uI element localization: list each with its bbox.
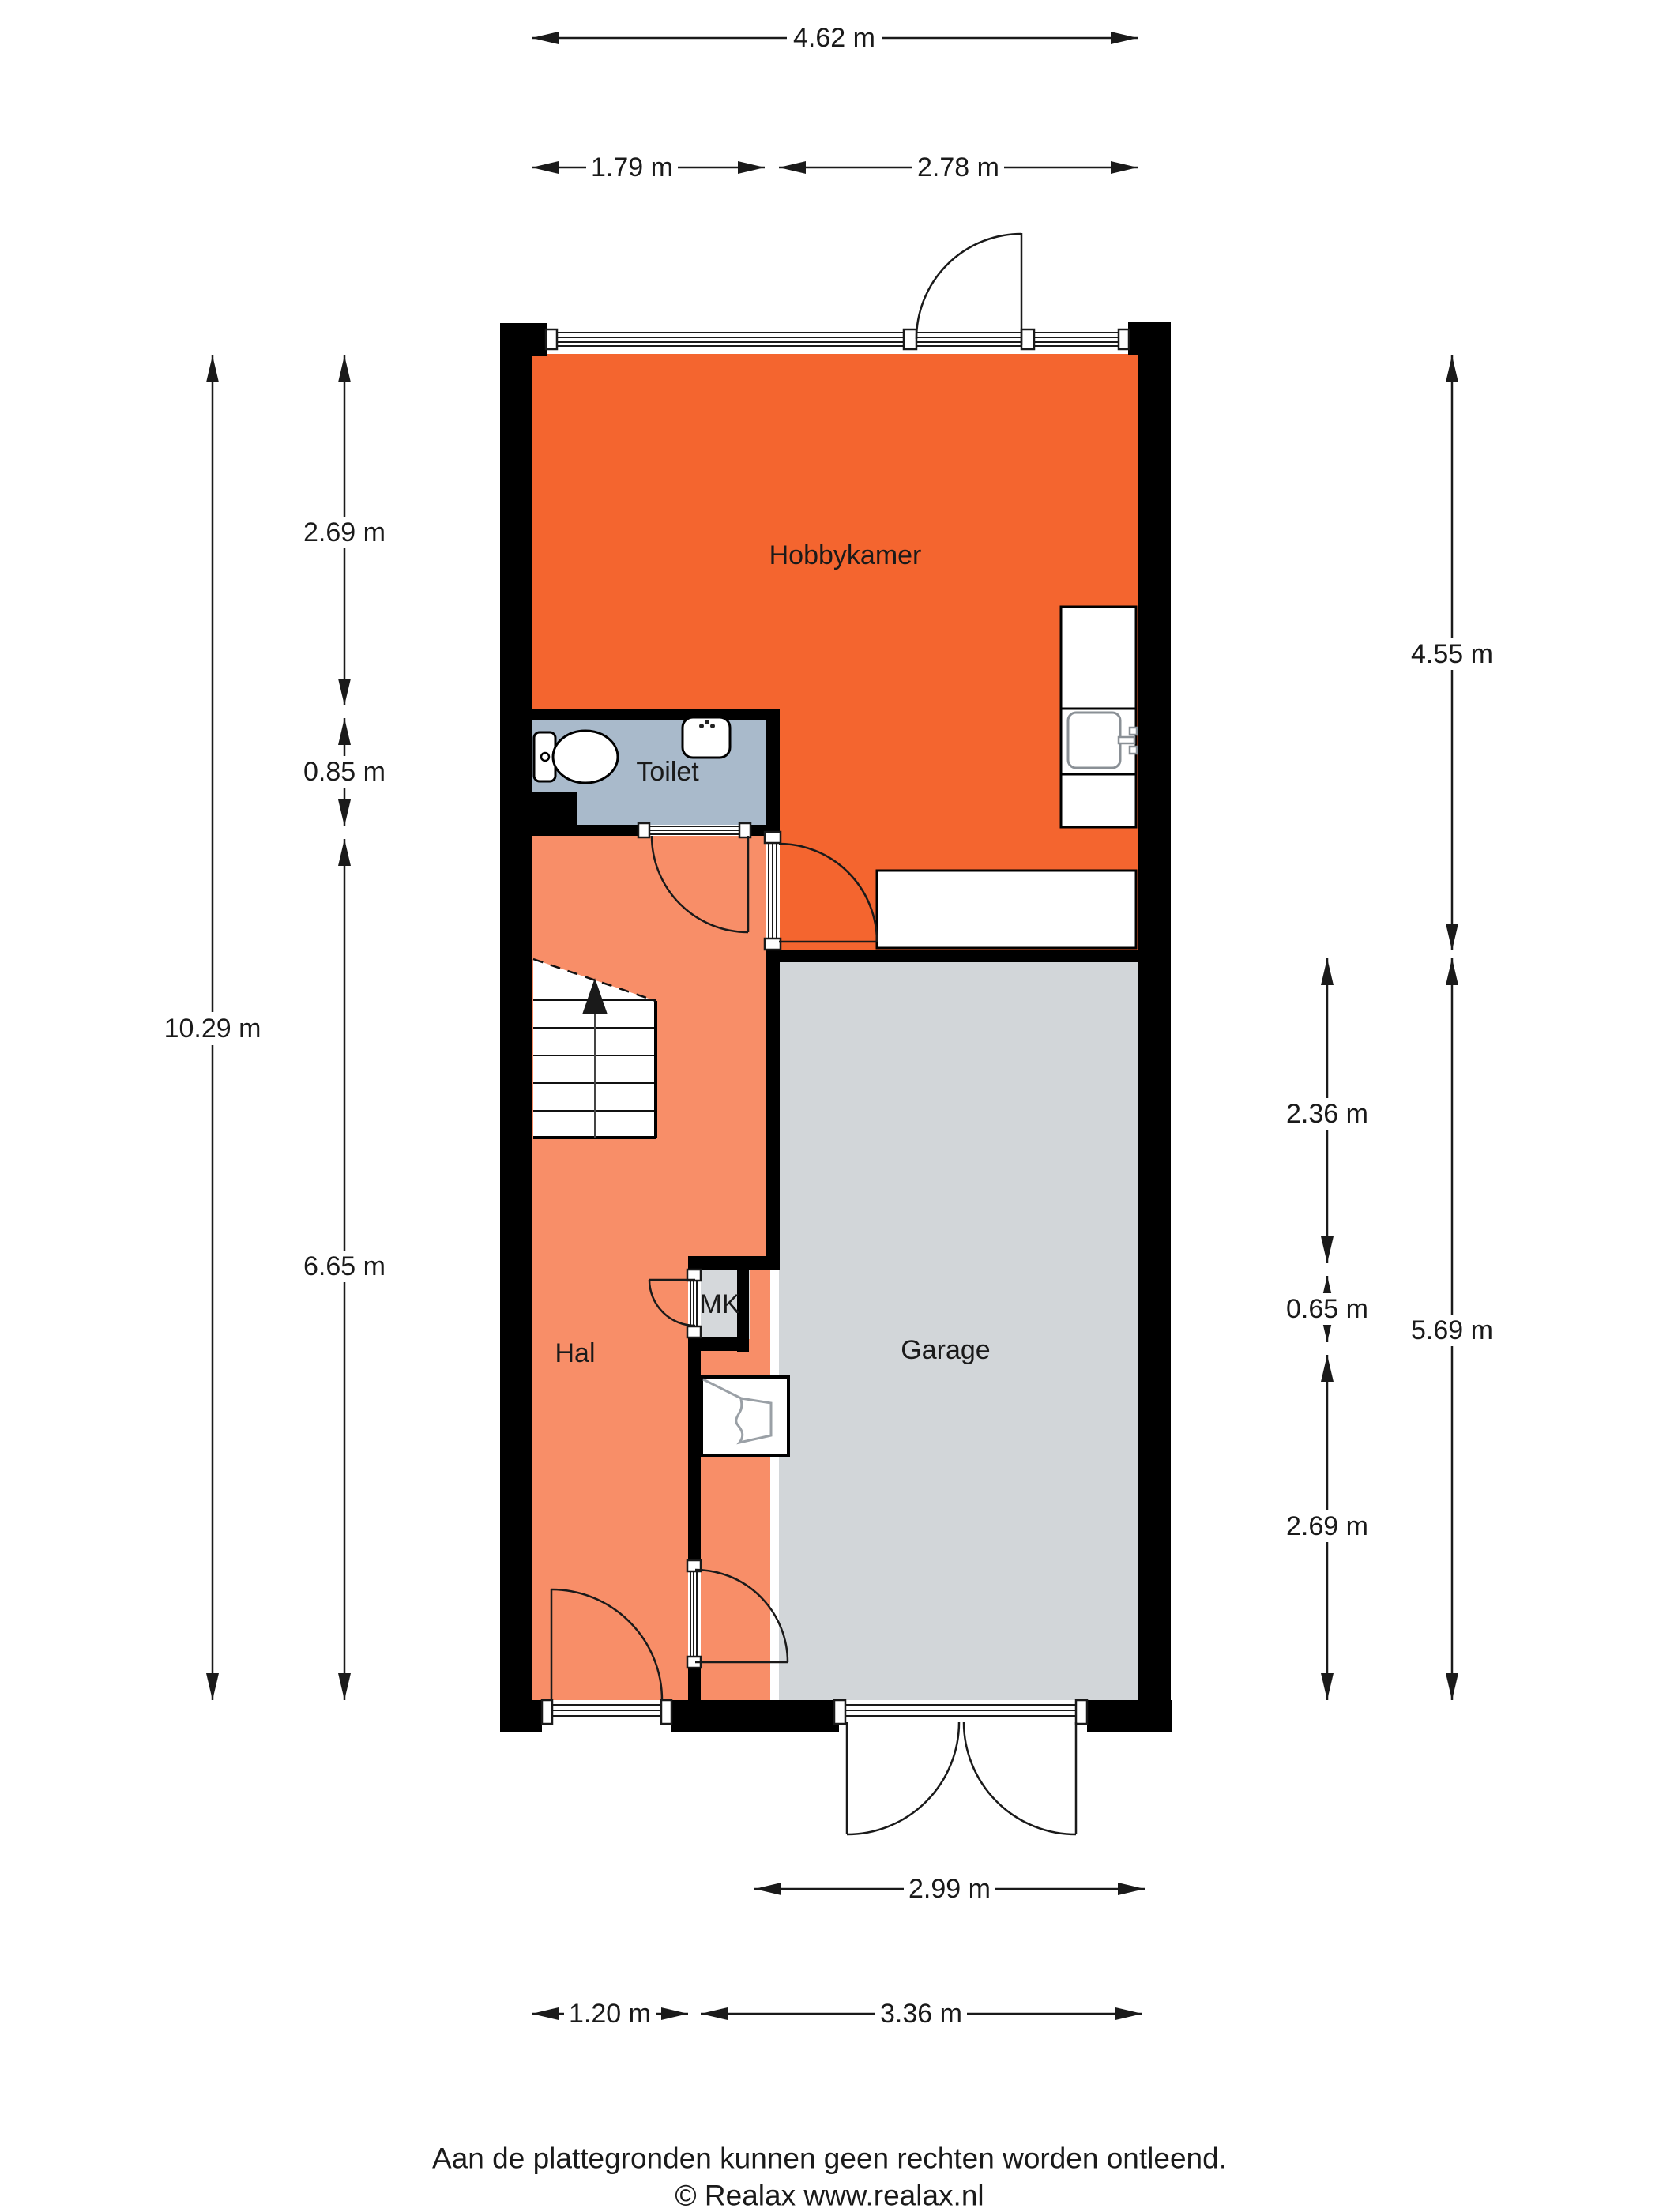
toilet-door-opening xyxy=(638,823,750,837)
garage-door-left-swing xyxy=(847,1722,959,1834)
dim-right-seg-3: 2.69 m xyxy=(1286,1511,1368,1541)
dim-right-seg-1: 2.36 m xyxy=(1286,1099,1368,1129)
footer-copyright: © Realax www.realax.nl xyxy=(675,2180,984,2212)
dim-left-seg-1: 2.69 m xyxy=(303,517,386,547)
room-label-mk: MK xyxy=(700,1289,740,1319)
room-label-hobbykamer: Hobbykamer xyxy=(769,540,922,570)
washbasin-icon xyxy=(683,717,730,758)
dim-bottom-left: 1.20 m xyxy=(569,1999,651,2029)
footer-disclaimer: Aan de plattegronden kunnen geen rechten… xyxy=(432,2142,1227,2175)
footer: Aan de plattegronden kunnen geen rechten… xyxy=(432,2142,1227,2212)
front-door-opening xyxy=(542,1700,671,1724)
dim-right-outer-top: 4.55 m xyxy=(1411,639,1493,669)
floorplan-page: Hobbykamer Toilet Hal MK Garage 4.62 m 1… xyxy=(0,0,1659,2212)
dim-right-seg-2: 0.65 m xyxy=(1286,1294,1368,1324)
garage-door-right-swing xyxy=(964,1722,1076,1834)
garage-door-opening xyxy=(834,1700,1087,1724)
dim-top-total: 4.62 m xyxy=(793,23,875,53)
room-label-toilet: Toilet xyxy=(636,757,699,787)
dim-left-seg-3: 6.65 m xyxy=(303,1251,386,1281)
boiler-icon xyxy=(702,1377,788,1455)
room-garage-floor xyxy=(779,961,1139,1702)
room-label-hal: Hal xyxy=(555,1338,595,1368)
dim-top-right: 2.78 m xyxy=(917,152,999,182)
garage-side-door-opening xyxy=(687,1560,701,1668)
top-entry-door-swing xyxy=(916,233,1021,345)
dim-left-seg-2: 0.85 m xyxy=(303,757,386,787)
dim-bottom-right: 3.36 m xyxy=(880,1999,962,2029)
room-label-garage: Garage xyxy=(901,1335,990,1365)
hobbykamer-door-opening xyxy=(765,832,781,950)
counter-unit-tall xyxy=(1061,607,1137,827)
dim-right-outer-bottom: 5.69 m xyxy=(1411,1315,1493,1345)
floorplan-canvas: Hobbykamer Toilet Hal MK Garage 4.62 m 1… xyxy=(0,0,1659,2212)
dim-bottom-door: 2.99 m xyxy=(908,1874,991,1904)
window-band-top xyxy=(546,329,1129,349)
dim-left-outer: 10.29 m xyxy=(164,1014,261,1044)
dim-top-left: 1.79 m xyxy=(591,152,673,182)
wc-icon xyxy=(534,731,618,783)
counter-unit-low xyxy=(877,871,1136,948)
